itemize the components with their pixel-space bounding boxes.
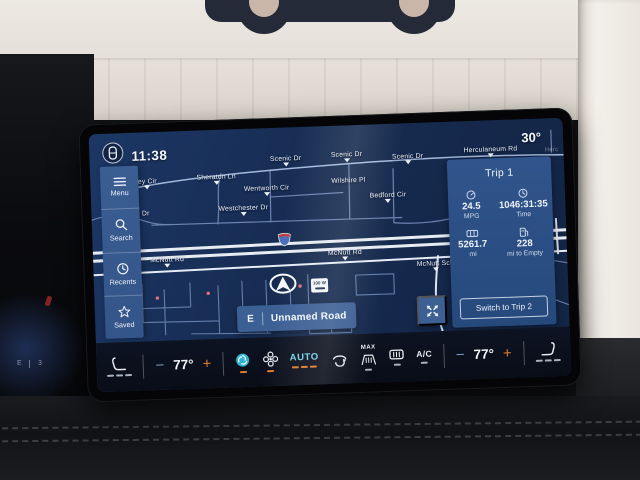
sidebar-item-saved[interactable]: Saved <box>104 294 143 339</box>
max-level <box>365 369 372 372</box>
trip-stat-mpg: 24.5 MPG <box>448 189 495 221</box>
rear-defrost-icon <box>389 348 405 361</box>
map-expand-button[interactable] <box>416 295 447 326</box>
climate-swirl-icon <box>235 351 252 368</box>
instrument-cluster-glow <box>0 292 86 396</box>
compass-direction: E <box>247 313 254 324</box>
nav-sidebar: Menu Search Recents <box>100 166 144 339</box>
ac-label: A/C <box>416 348 432 359</box>
clock-icon <box>116 262 129 275</box>
divider <box>222 351 224 375</box>
cluster-divider <box>29 360 30 368</box>
trip-stat-label: MPG <box>464 213 480 221</box>
recirculation-icon <box>330 351 349 367</box>
driver-temp-value: 77° <box>173 357 194 373</box>
recirculation-button[interactable] <box>330 351 349 367</box>
auto-level <box>292 366 317 370</box>
sidebar-item-label: Recents <box>109 276 136 286</box>
max-label: MAX <box>361 344 376 351</box>
street-label: McNutt Rd <box>328 249 362 257</box>
passenger-temp-value: 77° <box>473 346 494 362</box>
fuel-pump-icon <box>519 227 529 237</box>
passenger-temp-up-button[interactable]: + <box>503 346 512 361</box>
vehicle-position-icon <box>270 274 296 293</box>
trip-stat-label: mi <box>469 251 476 258</box>
odometer-icon <box>466 229 478 238</box>
sidebar-item-search[interactable]: Search <box>101 208 140 253</box>
vehicle-status-button[interactable] <box>102 142 124 164</box>
auto-climate-button[interactable]: AUTO <box>289 351 319 369</box>
fan-speed-button[interactable] <box>262 350 279 373</box>
clock-time: 11:38 <box>131 148 167 164</box>
trip-stat-value: 5261.7 <box>458 239 487 251</box>
driver-temp-control: − 77° + <box>155 356 211 373</box>
sidebar-item-label: Menu <box>111 188 129 198</box>
right-wall <box>578 0 640 344</box>
ac-toggle-button[interactable]: A/C <box>416 348 432 365</box>
current-road-banner: E Unnamed Road <box>237 302 357 332</box>
screen: ey Cir r Dr Sheraton Ln Wentworth Cir Sc… <box>89 118 572 392</box>
switch-trip-button[interactable]: Switch to Trip 2 <box>460 295 549 319</box>
street-label: ey Cir <box>138 178 157 186</box>
divider <box>443 344 445 368</box>
fan-icon <box>262 350 279 367</box>
vehicle-icon <box>107 145 119 160</box>
ac-level <box>240 370 247 373</box>
cluster-gear-label: 3 <box>38 360 42 367</box>
sidebar-item-label: Saved <box>114 320 135 330</box>
driver-temp-up-button[interactable]: + <box>202 356 211 371</box>
trip-stat-value: 1046:31:35 <box>499 198 548 211</box>
windshield-defrost-icon <box>359 353 377 366</box>
infotainment-display: ey Cir r Dr Sheraton Ln Wentworth Cir Sc… <box>78 107 581 402</box>
ac-power-button[interactable] <box>235 351 252 374</box>
trip-title: Trip 1 <box>447 165 551 181</box>
trip-stat-range: 228 mi to Empty <box>495 226 554 258</box>
fan-level <box>267 370 274 373</box>
seat-heat-level <box>536 359 561 363</box>
street-label: Wilshire Pl <box>331 177 366 185</box>
trip-stat-label: mi to Empty <box>507 250 543 258</box>
map-sign-bar <box>315 287 325 289</box>
trip-stat-value: 24.5 <box>462 201 481 213</box>
map-sign-marker: 100 W <box>311 278 328 293</box>
auto-label: AUTO <box>289 351 319 363</box>
trip-stat-time: 1046:31:35 Time <box>494 187 553 219</box>
trip-stat-value: 228 <box>517 238 533 250</box>
street-label: McNutt Sch <box>417 260 454 268</box>
ac-toggle-level <box>421 361 428 364</box>
expand-arrows-icon <box>424 303 440 319</box>
street-label: Bedford Cir <box>370 191 407 199</box>
passenger-temp-control: − 77° + <box>456 346 512 363</box>
street-label: McNutt Rd <box>150 256 184 264</box>
trip-stats: 24.5 MPG 1046:31:35 Time <box>448 187 554 260</box>
seat-right-icon <box>538 341 559 357</box>
outside-temperature: 30° <box>521 130 541 146</box>
divider <box>523 341 525 365</box>
driver-seat-heat-button[interactable] <box>106 356 132 378</box>
driver-temp-down-button[interactable]: − <box>155 358 164 373</box>
cabin-photo: E 3 <box>0 0 640 480</box>
max-defrost-button[interactable]: MAX <box>359 344 378 372</box>
sidebar-item-label: Search <box>110 233 133 243</box>
street-label: Sheraton Ln <box>196 173 235 181</box>
search-icon <box>114 218 127 231</box>
sidebar-item-menu[interactable]: Menu <box>100 166 139 210</box>
seat-heat-level <box>107 374 132 378</box>
rear-defrost-button[interactable] <box>389 348 406 367</box>
passenger-temp-down-button[interactable]: − <box>456 347 465 362</box>
mpg-gauge-icon <box>466 190 476 200</box>
cluster-fuel-label: E <box>17 360 22 367</box>
trip-stat-distance: 5261.7 mi <box>449 228 496 260</box>
time-clock-icon <box>518 188 528 198</box>
trip-stat-label: Time <box>516 211 531 219</box>
sidebar-item-recents[interactable]: Recents <box>103 251 142 296</box>
menu-icon <box>113 177 126 186</box>
passenger-seat-heat-button[interactable] <box>535 341 561 363</box>
banner-divider <box>262 312 263 325</box>
seat-left-icon <box>109 356 130 372</box>
trip-panel: Trip 1 24.5 MPG <box>447 156 557 328</box>
map-sign-text: 100 W <box>313 281 326 286</box>
star-icon <box>117 305 130 318</box>
divider <box>143 354 145 378</box>
current-road-name: Unnamed Road <box>271 310 347 324</box>
rear-defrost-level <box>394 363 401 366</box>
